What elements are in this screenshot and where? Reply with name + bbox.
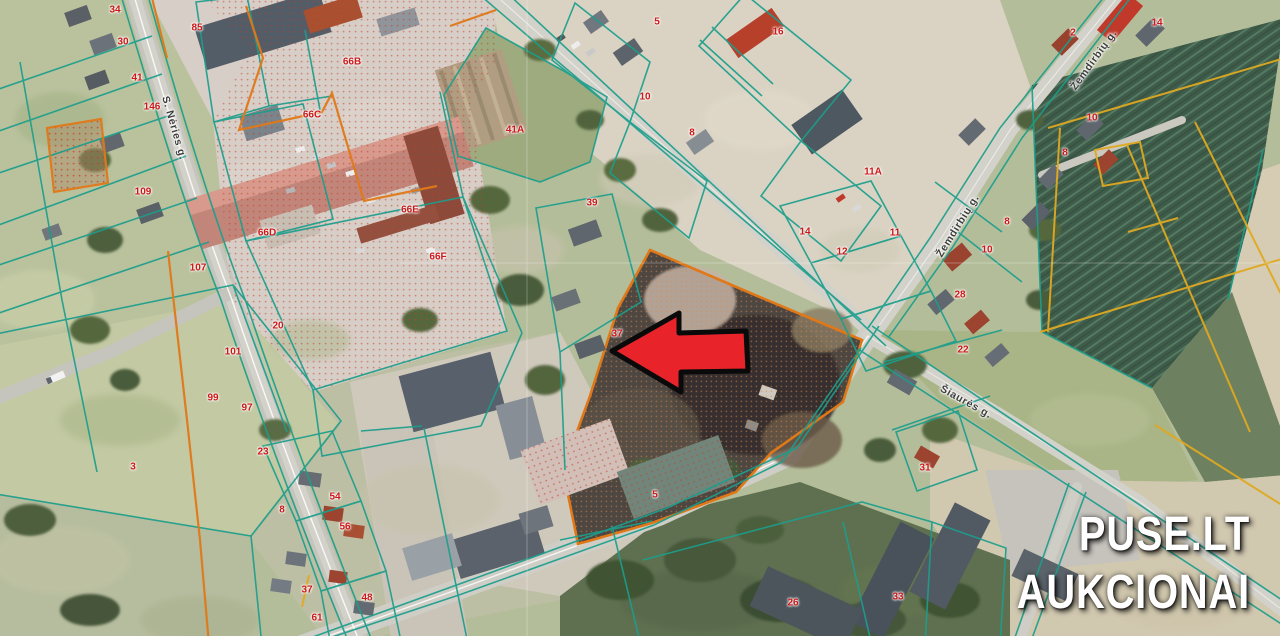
auction-map: S. Nėries g.Žemdirbių g.Žemdirbių g.Šiau… [0,0,1280,636]
watermark-branding: PUSE.LT AUKCIONAI [1017,506,1250,622]
brand-site-name: PUSE.LT [1017,506,1250,564]
brand-auction-label: AUKCIONAI [1017,564,1250,622]
